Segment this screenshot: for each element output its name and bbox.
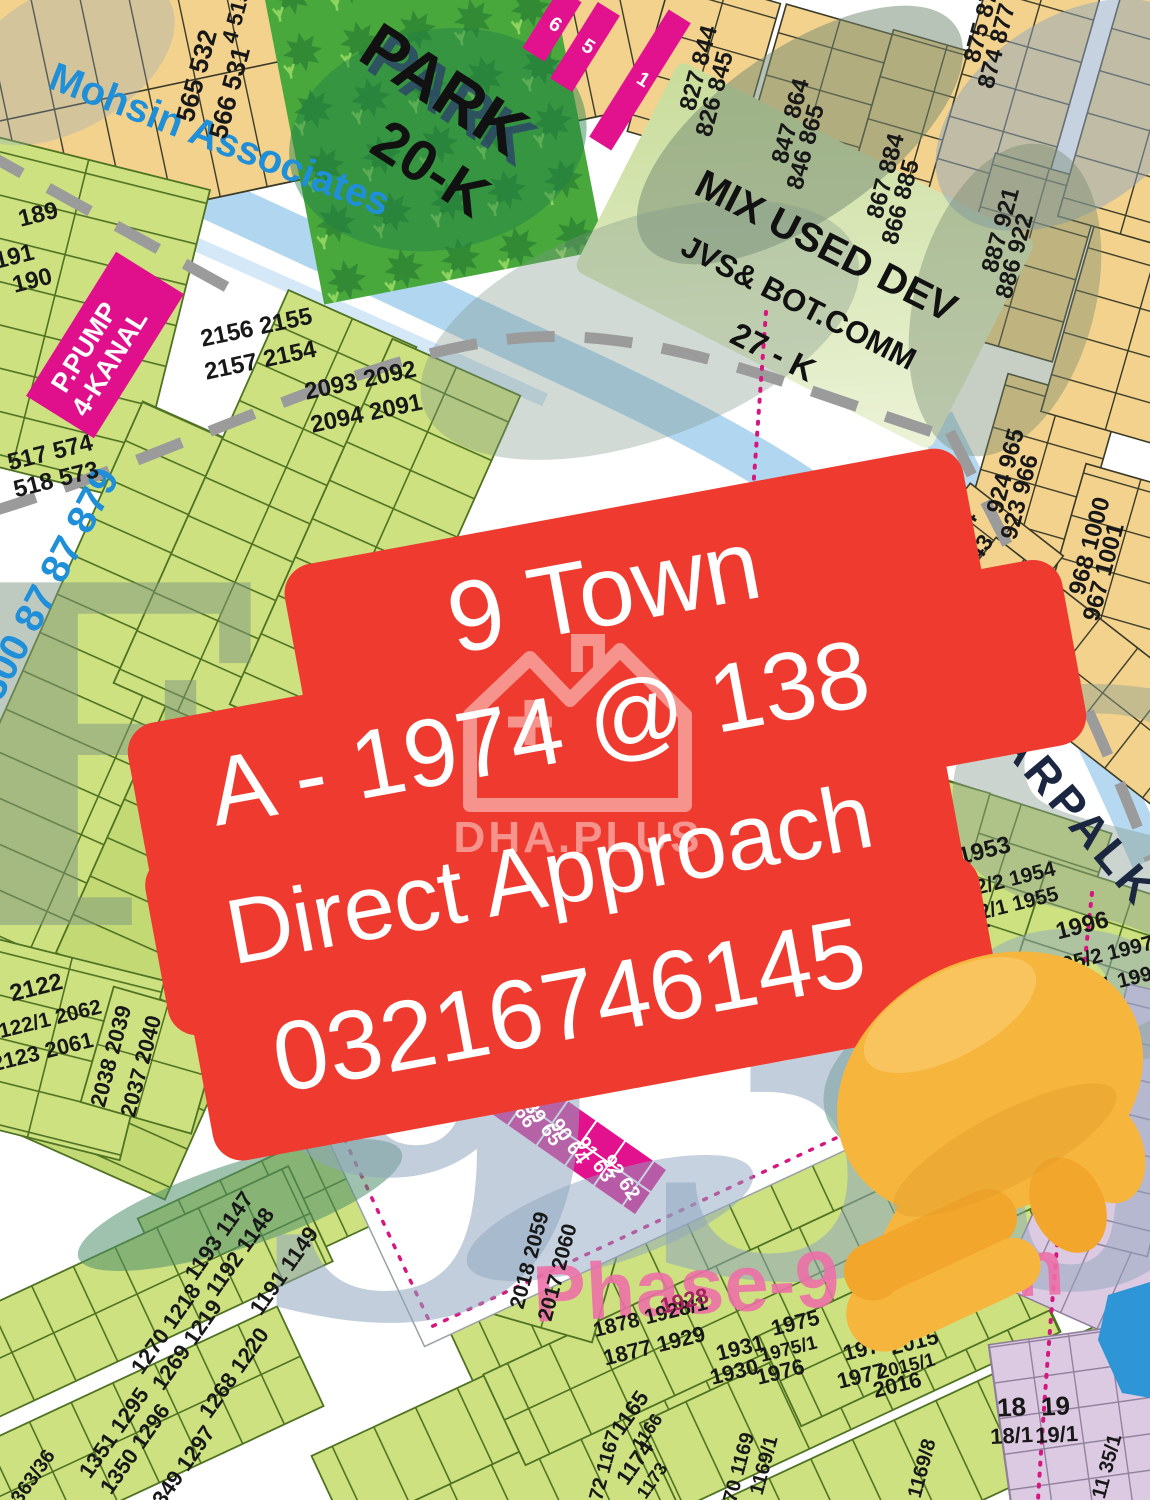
plot-map: F 9 3 0 S PARK PARK 20-K MIX USED DEV JV… — [0, 0, 1150, 1500]
plot-number: 19 — [1040, 1390, 1070, 1421]
plot-number: 18/1 — [990, 1422, 1034, 1449]
map-canvas: F 9 3 0 S PARK PARK 20-K MIX USED DEV JV… — [0, 0, 1150, 1500]
plot-number: 19/1 — [1035, 1421, 1079, 1448]
plot-number: 18 — [996, 1391, 1026, 1422]
